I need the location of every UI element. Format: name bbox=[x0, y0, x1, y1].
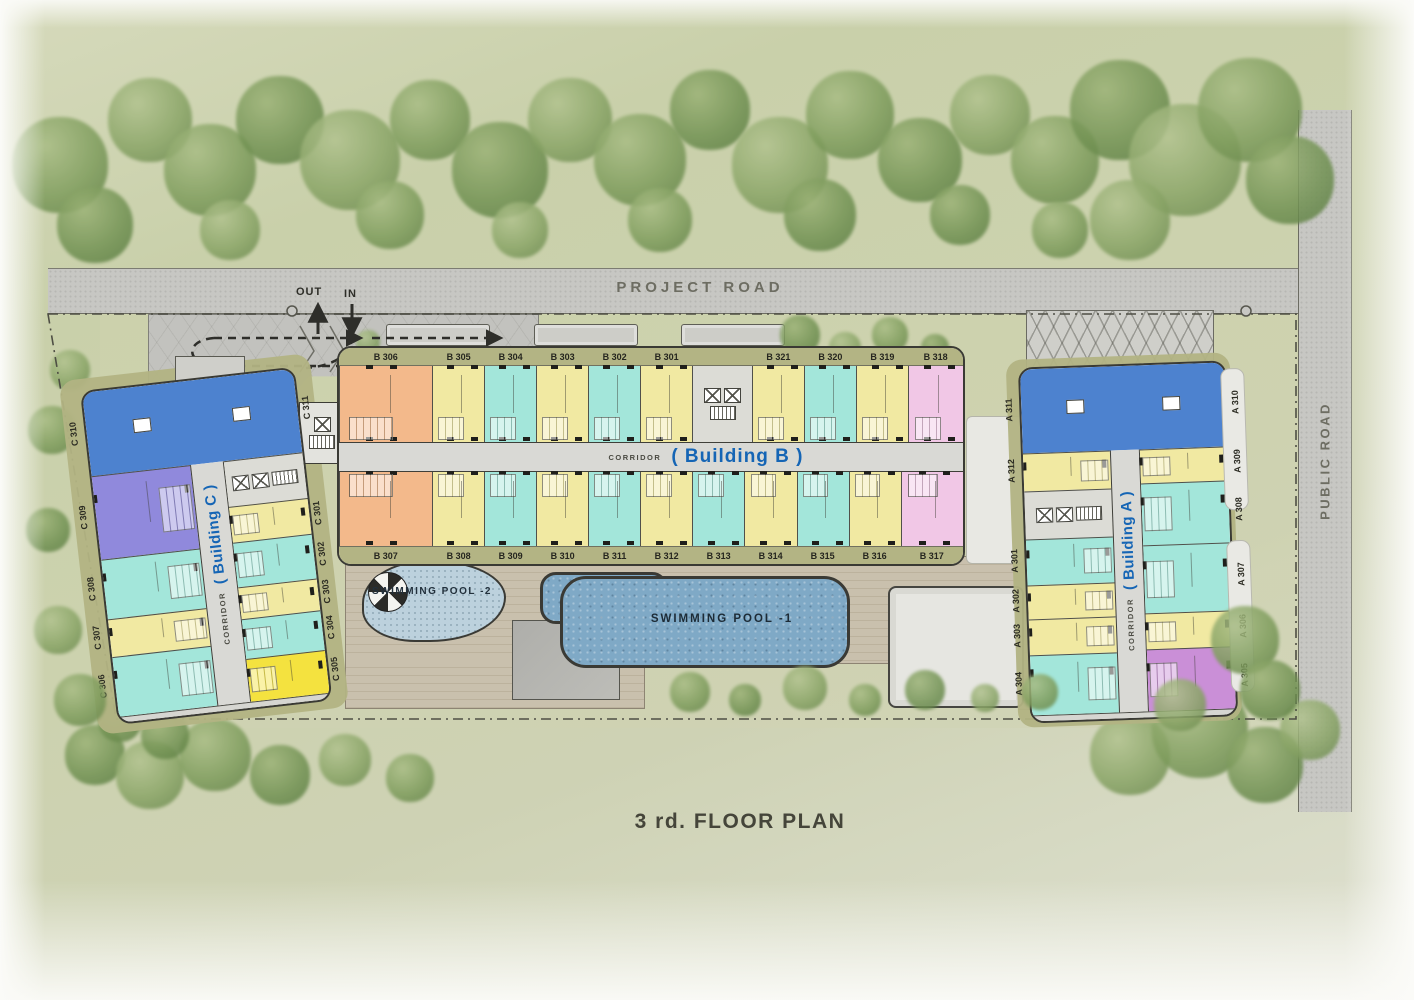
bathroom-fixtures bbox=[174, 617, 208, 642]
unit-b307 bbox=[339, 472, 432, 546]
unit-label-b301: B 301 bbox=[641, 348, 693, 365]
elevator-icon bbox=[232, 474, 251, 491]
unit-label-b321: B 321 bbox=[752, 348, 804, 365]
unit-c305 bbox=[246, 650, 330, 702]
elevator-icon bbox=[704, 388, 721, 403]
building-b-top-units bbox=[339, 366, 963, 442]
unit-label-b314: B 314 bbox=[745, 547, 797, 564]
unit-a302 bbox=[1028, 582, 1116, 619]
unit-b302 bbox=[588, 366, 640, 442]
building-b: B 306B 305B 304B 303B 302B 301B 321B 320… bbox=[337, 346, 965, 566]
elevator-icon bbox=[1055, 507, 1073, 523]
unit-a309 bbox=[1140, 446, 1228, 483]
swimming-pool-1-label: SWIMMING POOL -1 bbox=[612, 613, 832, 625]
bathroom-fixtures bbox=[1087, 666, 1116, 700]
bathroom-fixtures bbox=[232, 512, 260, 535]
unit-b318 bbox=[908, 366, 963, 442]
bathroom-fixtures bbox=[349, 417, 393, 440]
unit-b317 bbox=[901, 472, 963, 546]
bathroom-fixtures bbox=[438, 474, 463, 497]
bathroom-fixtures bbox=[862, 417, 887, 440]
bathroom-fixtures bbox=[1086, 625, 1115, 646]
bathroom-fixtures bbox=[1148, 621, 1177, 642]
bathroom-fixtures bbox=[1085, 591, 1114, 611]
unit-label-b311: B 311 bbox=[589, 547, 641, 564]
road-marker bbox=[1241, 306, 1251, 316]
unit-b312 bbox=[640, 472, 692, 546]
unit-b311 bbox=[588, 472, 640, 546]
building-c-body: CORRIDOR ( Building C ) bbox=[80, 367, 333, 725]
bathroom-fixtures bbox=[810, 417, 835, 440]
band-spacer bbox=[693, 348, 753, 365]
bathroom-fixtures bbox=[1083, 547, 1112, 573]
unit-b319 bbox=[856, 366, 908, 442]
bathroom-fixtures bbox=[249, 666, 277, 693]
building-b-body: B 306B 305B 304B 303B 302B 301B 321B 320… bbox=[337, 346, 965, 566]
building-b-top-label-band: B 306B 305B 304B 303B 302B 301B 321B 320… bbox=[339, 348, 963, 366]
page-title: 3 rd. FLOOR PLAN bbox=[590, 810, 890, 834]
unit-c308 bbox=[101, 549, 206, 620]
building-a: A 311A 312A 301A 302A 303A 304 A 310A 30… bbox=[1018, 361, 1234, 720]
label-spacer bbox=[1003, 490, 1022, 539]
unit-label-c303: C 303 bbox=[316, 575, 337, 609]
unit-b315 bbox=[797, 472, 849, 546]
building-a-corridor-label: CORRIDOR bbox=[1126, 597, 1137, 650]
bathroom-fixtures bbox=[490, 417, 515, 440]
unit-label-b318: B 318 bbox=[908, 348, 963, 365]
bathroom-fixtures bbox=[349, 474, 393, 497]
in-label: IN bbox=[344, 288, 357, 300]
bathroom-fixtures bbox=[594, 417, 619, 440]
unit-a301 bbox=[1026, 536, 1115, 585]
unit-label-a301: A 301 bbox=[1005, 538, 1024, 585]
unit-b301 bbox=[640, 366, 692, 442]
unit-label-a311: A 311 bbox=[999, 368, 1019, 453]
building-a-right-units bbox=[1140, 446, 1236, 711]
stairs-icon bbox=[272, 469, 299, 486]
tree bbox=[849, 684, 881, 716]
unit-label-a312: A 312 bbox=[1002, 452, 1020, 491]
bathroom-fixtures bbox=[594, 474, 619, 497]
unit-label-a310: A 310 bbox=[1225, 360, 1245, 445]
unit-label-a303: A 303 bbox=[1008, 618, 1026, 655]
elevator-icon bbox=[724, 388, 741, 403]
tree bbox=[905, 670, 945, 710]
swimming-pool-2-label: SWIMMING POOL -2 bbox=[352, 586, 512, 597]
unit-a307 bbox=[1143, 542, 1232, 613]
building-b-corridor: CORRIDOR ( Building B ) bbox=[339, 442, 963, 472]
unit-label-b319: B 319 bbox=[856, 348, 908, 365]
stairs-icon bbox=[710, 406, 736, 420]
unit-b306 bbox=[339, 366, 432, 442]
unit-label-b303: B 303 bbox=[537, 348, 589, 365]
unit-label-b310: B 310 bbox=[537, 547, 589, 564]
bathroom-fixtures bbox=[646, 474, 671, 497]
bathroom-fixtures bbox=[915, 417, 942, 440]
tree bbox=[670, 672, 710, 712]
unit-label-a302: A 302 bbox=[1006, 584, 1024, 619]
tree bbox=[54, 674, 106, 726]
building-b-corridor-label: CORRIDOR bbox=[608, 453, 661, 462]
unit-label-b309: B 309 bbox=[485, 547, 537, 564]
unit-c306 bbox=[112, 646, 217, 717]
bathroom-fixtures bbox=[241, 592, 269, 613]
bathroom-fixtures bbox=[542, 474, 567, 497]
tree bbox=[783, 666, 827, 710]
tree bbox=[971, 684, 999, 712]
tree bbox=[1240, 660, 1300, 720]
unit-b304 bbox=[484, 366, 536, 442]
unit-label-a309: A 309 bbox=[1228, 444, 1246, 479]
bathroom-fixtures bbox=[1080, 460, 1109, 482]
bathroom-fixtures bbox=[438, 417, 463, 440]
bathroom-fixtures bbox=[646, 417, 671, 440]
bathroom-fixtures bbox=[245, 626, 273, 651]
bathroom-fixtures bbox=[179, 660, 214, 696]
unit-a308 bbox=[1141, 480, 1230, 545]
unit-a311-a310 bbox=[1020, 362, 1227, 453]
bathroom-fixtures bbox=[1142, 457, 1171, 477]
unit-b305 bbox=[432, 366, 484, 442]
unit-label-b305: B 305 bbox=[433, 348, 485, 365]
unit-b321 bbox=[752, 366, 804, 442]
bathroom-fixtures bbox=[698, 474, 723, 497]
unit-label-b307: B 307 bbox=[339, 547, 433, 564]
building-c-name: ( Building C ) bbox=[201, 483, 229, 585]
bathroom-fixtures bbox=[236, 550, 264, 578]
road-marker bbox=[287, 306, 297, 316]
bathroom-fixtures bbox=[1146, 560, 1175, 598]
stairs-icon bbox=[1075, 506, 1101, 521]
unit-label-b320: B 320 bbox=[804, 348, 856, 365]
building-b-name: ( Building B ) bbox=[671, 446, 803, 468]
bathroom-fixtures bbox=[159, 484, 196, 532]
unit-a303 bbox=[1029, 616, 1117, 655]
unit-b314 bbox=[744, 472, 796, 546]
bathroom-fixtures bbox=[758, 417, 783, 440]
bathroom-fixtures bbox=[855, 474, 880, 497]
unit-label-b306: B 306 bbox=[339, 348, 433, 365]
bathroom-fixtures bbox=[803, 474, 828, 497]
unit-c309 bbox=[92, 465, 200, 560]
unit-a312 bbox=[1023, 451, 1111, 492]
site-plan-canvas: PROJECT ROAD PUBLIC ROAD OUT IN SWIMMING… bbox=[0, 0, 1414, 1000]
tree bbox=[729, 684, 761, 716]
unit-b320 bbox=[804, 366, 856, 442]
building-a-body: CORRIDOR ( Building A ) bbox=[1018, 360, 1238, 723]
bathroom-fixtures bbox=[1143, 497, 1172, 532]
unit-label-b315: B 315 bbox=[797, 547, 849, 564]
tree bbox=[34, 606, 82, 654]
unit-b303 bbox=[536, 366, 588, 442]
unit-label-b302: B 302 bbox=[589, 348, 641, 365]
building-b-bottom-label-band: B 307B 308B 309B 310B 311B 312B 313B 314… bbox=[339, 546, 963, 564]
service-core bbox=[1024, 488, 1113, 539]
unit-b310 bbox=[536, 472, 588, 546]
unit-b316 bbox=[849, 472, 901, 546]
unit-b309 bbox=[484, 472, 536, 546]
bathroom-fixtures bbox=[168, 563, 203, 599]
building-b-bottom-units bbox=[339, 472, 963, 546]
bathroom-fixtures bbox=[751, 474, 776, 497]
service-core bbox=[692, 366, 752, 442]
unit-label-a307: A 307 bbox=[1231, 540, 1250, 609]
unit-label-b313: B 313 bbox=[693, 547, 745, 564]
unit-b308 bbox=[432, 472, 484, 546]
building-a-name: ( Building A ) bbox=[1118, 490, 1138, 590]
unit-label-b317: B 317 bbox=[901, 547, 963, 564]
elevator-icon bbox=[1035, 508, 1053, 524]
unit-label-b308: B 308 bbox=[433, 547, 485, 564]
bathroom-fixtures bbox=[490, 474, 515, 497]
building-c-corridor-label: CORRIDOR bbox=[217, 591, 232, 645]
bathroom-fixtures bbox=[908, 474, 938, 497]
unit-label-b316: B 316 bbox=[849, 547, 901, 564]
building-c: C 310C 309C 308C 307C 306 C 311C 301C 30… bbox=[80, 367, 328, 721]
out-label: OUT bbox=[296, 286, 322, 298]
tree bbox=[1022, 674, 1058, 710]
bathroom-fixtures bbox=[542, 417, 567, 440]
unit-label-b304: B 304 bbox=[485, 348, 537, 365]
unit-label-b312: B 312 bbox=[641, 547, 693, 564]
tree bbox=[1154, 679, 1206, 731]
unit-b313 bbox=[692, 472, 744, 546]
elevator-icon bbox=[252, 472, 271, 489]
unit-label-a308: A 308 bbox=[1229, 478, 1248, 541]
